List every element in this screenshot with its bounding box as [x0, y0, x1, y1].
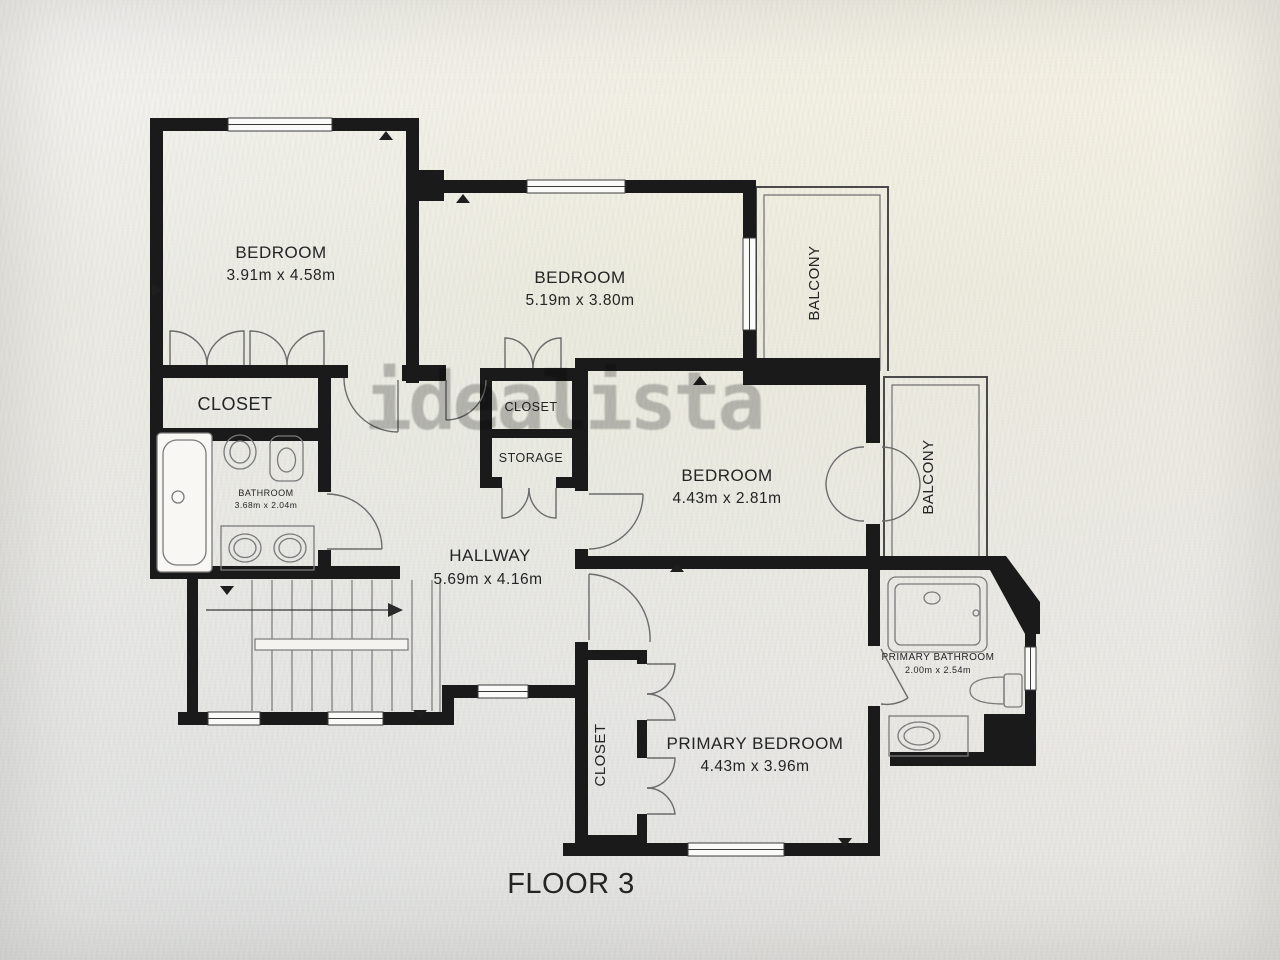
wall-segment: [868, 569, 880, 646]
wall-segment: [150, 365, 330, 378]
room-label-bedroom-1: BEDROOM: [235, 243, 326, 262]
french-doors-balcony: [826, 447, 920, 521]
wall-segment: [575, 835, 647, 845]
bifold-doors-storage: [502, 488, 556, 518]
wall-segment: [575, 650, 647, 660]
shower: [888, 577, 987, 652]
toilet: [970, 674, 1022, 707]
room-label-bedroom-3: BEDROOM: [681, 466, 772, 485]
room-label-storage: STORAGE: [499, 451, 563, 465]
room-label-primary-bathroom: PRIMARY BATHROOM: [881, 652, 994, 663]
room-label-closet-bedroom-1: CLOSET: [197, 394, 272, 414]
room-label-bathroom: BATHROOM: [238, 488, 293, 498]
window: [478, 685, 528, 698]
room-dims-primary-bedroom: 4.43m x 3.96m: [700, 758, 809, 775]
room-label-closet-primary: CLOSET: [592, 723, 609, 786]
staircase: [206, 579, 440, 712]
door-bathroom: [327, 494, 382, 549]
room-dims-bedroom-2: 5.19m x 3.80m: [525, 292, 634, 309]
wall-segment: [743, 180, 756, 238]
room-label-balcony-top: BALCONY: [806, 245, 823, 320]
window: [1025, 647, 1036, 690]
room-label-closet-hall: CLOSET: [504, 400, 557, 414]
wall-segment: [575, 556, 880, 569]
wall-segment: [406, 118, 419, 383]
stairs-direction-arrow: [388, 603, 403, 617]
door-bedroom-1: [344, 378, 398, 432]
room-label-hallway: HALLWAY: [449, 546, 531, 565]
wall-segment: [187, 579, 198, 719]
window: [527, 180, 625, 193]
wall-segment: [868, 706, 880, 856]
wall-segment: [480, 368, 582, 381]
room-dims-primary-bathroom: 2.00m x 2.54m: [905, 665, 971, 675]
wall-segment: [866, 385, 880, 443]
wall-segment: [890, 752, 1036, 766]
wall-segment: [1025, 630, 1036, 647]
double-sink: [221, 526, 314, 570]
room-label-bedroom-2: BEDROOM: [534, 268, 625, 287]
wall-segment: [575, 642, 588, 856]
window-balcony-door: [743, 238, 756, 330]
bifold-doors-closet-bedroom1: [170, 331, 324, 365]
wall-segment: [480, 477, 502, 488]
wall-segment: [575, 371, 588, 491]
room-label-primary-bedroom: PRIMARY BEDROOM: [667, 734, 844, 753]
floor-title: FLOOR 3: [507, 868, 635, 900]
wall-segment: [402, 365, 446, 381]
wall-segment: [330, 365, 348, 378]
wall-segment: [480, 429, 585, 438]
room-dims-bedroom-1: 3.91m x 4.58m: [226, 267, 335, 284]
floor-plan-drawing: BEDROOM 3.91m x 4.58m BEDROOM 5.19m x 3.…: [0, 0, 1280, 960]
bifold-doors-closet-hall: [505, 338, 561, 368]
window: [208, 712, 260, 725]
door-primary-suite: [589, 574, 650, 642]
room-dims-bedroom-3: 4.43m x 2.81m: [672, 490, 781, 507]
wall-segment: [575, 358, 880, 371]
floor-plan-photo: BEDROOM 3.91m x 4.58m BEDROOM 5.19m x 3.…: [0, 0, 1280, 960]
windows: [208, 118, 1036, 856]
sink: [889, 716, 968, 756]
wall-segment: [868, 556, 998, 570]
room-dims-bathroom: 3.68m x 2.04m: [235, 500, 298, 510]
window: [328, 712, 383, 725]
bathtub: [157, 433, 212, 572]
wall-segment: [318, 428, 331, 492]
wall-segment: [743, 371, 880, 385]
room-dims-hallway: 5.69m x 4.16m: [433, 571, 542, 588]
wall-segment: [637, 650, 647, 664]
door-bedroom-3: [589, 494, 643, 549]
window: [228, 118, 332, 131]
room-label-balcony-right: BALCONY: [920, 439, 937, 514]
wall-segment-angled: [990, 556, 1040, 634]
window: [688, 843, 784, 856]
wall-segment: [637, 720, 647, 758]
bidet: [270, 436, 303, 481]
